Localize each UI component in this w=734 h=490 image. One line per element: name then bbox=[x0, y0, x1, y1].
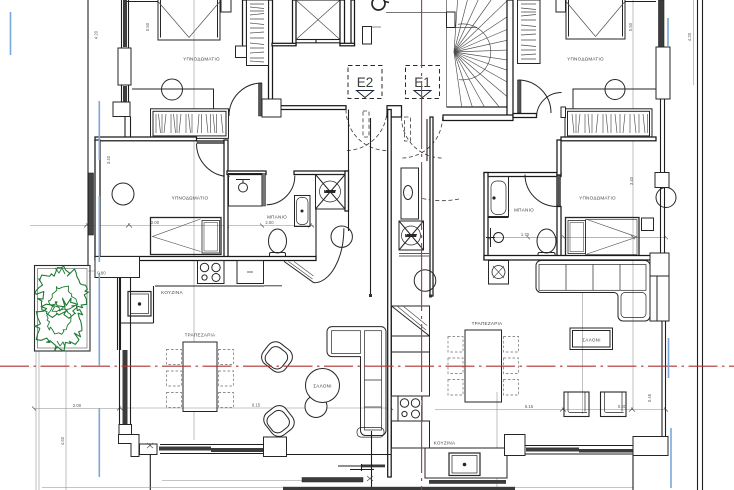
svg-text:4.20: 4.20 bbox=[687, 32, 692, 41]
svg-text:6.15: 6.15 bbox=[525, 404, 534, 409]
svg-text:4.20: 4.20 bbox=[94, 30, 99, 39]
svg-text:ΥΠΝΟΔΩΜΑΤΙΟ: ΥΠΝΟΔΩΜΑΤΙΟ bbox=[579, 196, 616, 201]
svg-text:2.00: 2.00 bbox=[265, 220, 274, 225]
svg-text:0.45: 0.45 bbox=[647, 393, 652, 402]
svg-text:1.70: 1.70 bbox=[521, 232, 530, 237]
svg-text:E2: E2 bbox=[357, 75, 374, 90]
svg-text:4.60: 4.60 bbox=[60, 436, 65, 445]
svg-text:ΥΠΝΟΔΩΜΑΤΙΟ: ΥΠΝΟΔΩΜΑΤΙΟ bbox=[183, 57, 220, 62]
svg-text:LAUNDRY: LAUNDRY bbox=[325, 191, 336, 194]
svg-text:0.80: 0.80 bbox=[97, 271, 106, 276]
svg-text:3.40: 3.40 bbox=[106, 155, 111, 164]
svg-text:6.15: 6.15 bbox=[252, 403, 261, 408]
svg-text:ΤΡΑΠΕΖΑΡΙΑ: ΤΡΑΠΕΖΑΡΙΑ bbox=[472, 321, 503, 326]
svg-text:0.50: 0.50 bbox=[628, 22, 633, 31]
svg-text:ΜΠΑΝΙΟ: ΜΠΑΝΙΟ bbox=[267, 215, 287, 220]
svg-text:0.80: 0.80 bbox=[618, 404, 627, 409]
svg-text:ΜΠΑΝΙΟ: ΜΠΑΝΙΟ bbox=[514, 208, 534, 213]
svg-text:3.40: 3.40 bbox=[629, 176, 634, 185]
svg-text:0.50: 0.50 bbox=[145, 22, 150, 31]
svg-text:ΤΡΑΠΕΖΑΡΙΑ: ΤΡΑΠΕΖΑΡΙΑ bbox=[185, 333, 216, 338]
svg-text:2.00: 2.00 bbox=[151, 220, 160, 225]
svg-text:ΥΠΝΟΔΩΜΑΤΙΟ: ΥΠΝΟΔΩΜΑΤΙΟ bbox=[172, 196, 209, 201]
svg-text:ΣΑΛΟΝΙ: ΣΑΛΟΝΙ bbox=[582, 338, 601, 343]
svg-text:ΚΟΥΖΙΝΑ: ΚΟΥΖΙΝΑ bbox=[434, 441, 456, 446]
svg-text:LAUNDRY: LAUNDRY bbox=[406, 235, 417, 238]
svg-text:ΥΠΝΟΔΩΜΑΤΙΟ: ΥΠΝΟΔΩΜΑΤΙΟ bbox=[567, 57, 604, 62]
svg-text:ΣΑΛΟΝΙ: ΣΑΛΟΝΙ bbox=[313, 384, 332, 389]
svg-text:ΚΟΥΖΙΝΑ: ΚΟΥΖΙΝΑ bbox=[161, 290, 183, 295]
svg-text:2.00: 2.00 bbox=[73, 403, 82, 408]
svg-text:E1: E1 bbox=[414, 75, 431, 90]
